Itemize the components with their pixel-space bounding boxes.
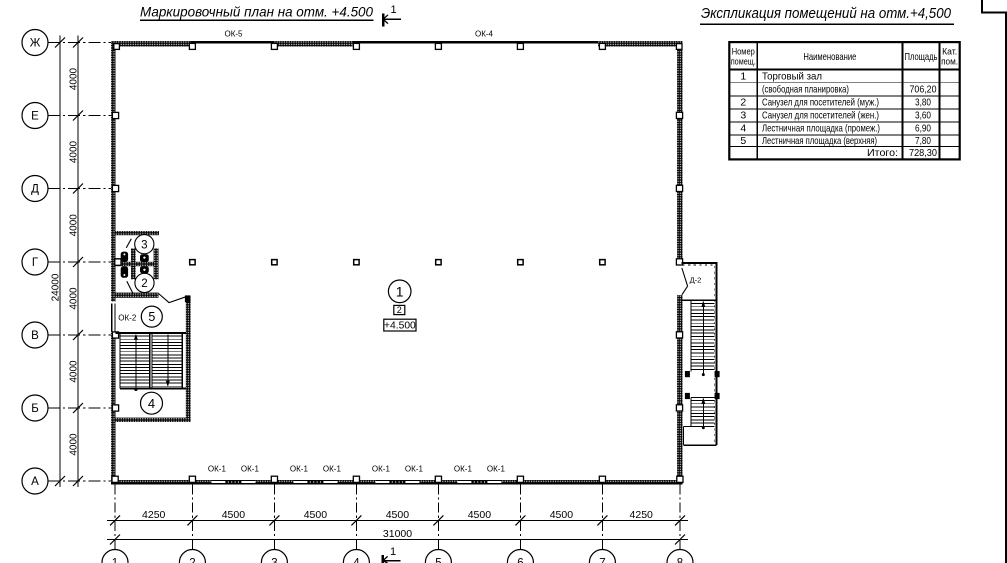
svg-text:5: 5 bbox=[148, 310, 155, 324]
svg-text:2: 2 bbox=[141, 278, 147, 290]
svg-text:4000: 4000 bbox=[68, 140, 79, 163]
svg-text:4500: 4500 bbox=[222, 509, 246, 521]
svg-text:ОК-2: ОК-2 bbox=[118, 314, 137, 323]
svg-text:ОК-4: ОК-4 bbox=[475, 30, 494, 39]
svg-text:4000: 4000 bbox=[68, 67, 79, 90]
svg-text:4: 4 bbox=[353, 558, 360, 563]
svg-text:8: 8 bbox=[677, 558, 683, 563]
svg-text:7,80: 7,80 bbox=[915, 135, 931, 147]
svg-text:Д: Д bbox=[31, 184, 39, 196]
svg-text:Итого:: Итого: bbox=[867, 147, 898, 159]
svg-text:3: 3 bbox=[271, 558, 277, 563]
svg-text:4250: 4250 bbox=[630, 509, 654, 521]
svg-text:Санузел для посетителей (жен.): Санузел для посетителей (жен.) bbox=[762, 110, 879, 122]
svg-text:В: В bbox=[31, 330, 39, 342]
svg-text:31000: 31000 bbox=[383, 528, 412, 540]
svg-text:5: 5 bbox=[435, 558, 441, 563]
svg-text:1: 1 bbox=[390, 546, 396, 558]
svg-text:ОК-5: ОК-5 bbox=[225, 30, 244, 39]
svg-text:728,30: 728,30 bbox=[909, 147, 937, 159]
svg-text:706,20: 706,20 bbox=[910, 83, 937, 95]
svg-text:Санузел для посетителей (муж.): Санузел для посетителей (муж.) bbox=[762, 97, 879, 109]
svg-text:7: 7 bbox=[599, 558, 605, 563]
svg-text:пом.: пом. bbox=[941, 57, 958, 68]
svg-text:5: 5 bbox=[740, 135, 746, 147]
svg-text:3: 3 bbox=[740, 110, 746, 122]
svg-text:4: 4 bbox=[148, 396, 155, 411]
svg-text:4250: 4250 bbox=[142, 509, 166, 521]
svg-text:Маркировочный план на отм. +4.: Маркировочный план на отм. +4.500 bbox=[140, 4, 373, 19]
svg-text:Торговый зал: Торговый зал bbox=[762, 70, 822, 82]
svg-text:ОК-1: ОК-1 bbox=[405, 465, 424, 474]
svg-text:Лестничная площадка (промеж.): Лестничная площадка (промеж.) bbox=[762, 123, 880, 135]
svg-text:3,60: 3,60 bbox=[915, 110, 931, 122]
svg-text:4500: 4500 bbox=[468, 509, 492, 521]
svg-text:ОК-1: ОК-1 bbox=[454, 465, 473, 474]
svg-text:4000: 4000 bbox=[68, 433, 79, 456]
svg-text:2: 2 bbox=[397, 305, 402, 315]
svg-text:+4.500: +4.500 bbox=[384, 321, 416, 332]
svg-text:Б: Б bbox=[31, 403, 39, 415]
svg-text:Лестничная площадка (верхняя): Лестничная площадка (верхняя) bbox=[762, 135, 877, 147]
svg-text:6: 6 bbox=[517, 558, 523, 563]
svg-text:2: 2 bbox=[189, 558, 195, 563]
svg-text:Г: Г bbox=[32, 257, 39, 269]
svg-text:1: 1 bbox=[112, 558, 118, 563]
svg-text:ОК-1: ОК-1 bbox=[487, 465, 506, 474]
svg-text:4000: 4000 bbox=[68, 287, 79, 310]
svg-text:4500: 4500 bbox=[550, 509, 574, 521]
svg-text:4000: 4000 bbox=[68, 360, 79, 383]
svg-text:ОК-1: ОК-1 bbox=[290, 465, 309, 474]
svg-text:4000: 4000 bbox=[68, 214, 79, 237]
svg-text:ОК-1: ОК-1 bbox=[241, 465, 260, 474]
svg-text:ОК-1: ОК-1 bbox=[372, 465, 391, 474]
svg-text:(свободная планировка): (свободная планировка) bbox=[762, 83, 849, 95]
svg-text:1: 1 bbox=[396, 284, 404, 300]
svg-text:Площадь: Площадь bbox=[905, 52, 938, 63]
svg-text:ОК-1: ОК-1 bbox=[208, 465, 227, 474]
svg-text:4500: 4500 bbox=[386, 509, 410, 521]
svg-text:24000: 24000 bbox=[50, 273, 61, 301]
svg-text:Е: Е bbox=[31, 111, 39, 123]
svg-text:3,80: 3,80 bbox=[915, 97, 931, 109]
svg-text:4500: 4500 bbox=[304, 509, 328, 521]
svg-text:Д-2: Д-2 bbox=[690, 276, 702, 285]
svg-text:Наименование: Наименование bbox=[803, 52, 856, 63]
svg-text:Экспликация помещений на отм.+: Экспликация помещений на отм.+4,500 bbox=[701, 5, 952, 22]
svg-text:1: 1 bbox=[740, 70, 746, 82]
svg-text:А: А bbox=[31, 476, 39, 488]
svg-text:2: 2 bbox=[740, 97, 746, 109]
svg-text:4: 4 bbox=[740, 123, 746, 135]
svg-text:ОК-1: ОК-1 bbox=[323, 465, 342, 474]
svg-text:1: 1 bbox=[390, 4, 396, 16]
svg-text:3: 3 bbox=[141, 239, 147, 251]
svg-text:6,90: 6,90 bbox=[915, 123, 931, 135]
svg-text:Ж: Ж bbox=[30, 38, 41, 50]
svg-text:помещ.: помещ. bbox=[731, 57, 756, 68]
